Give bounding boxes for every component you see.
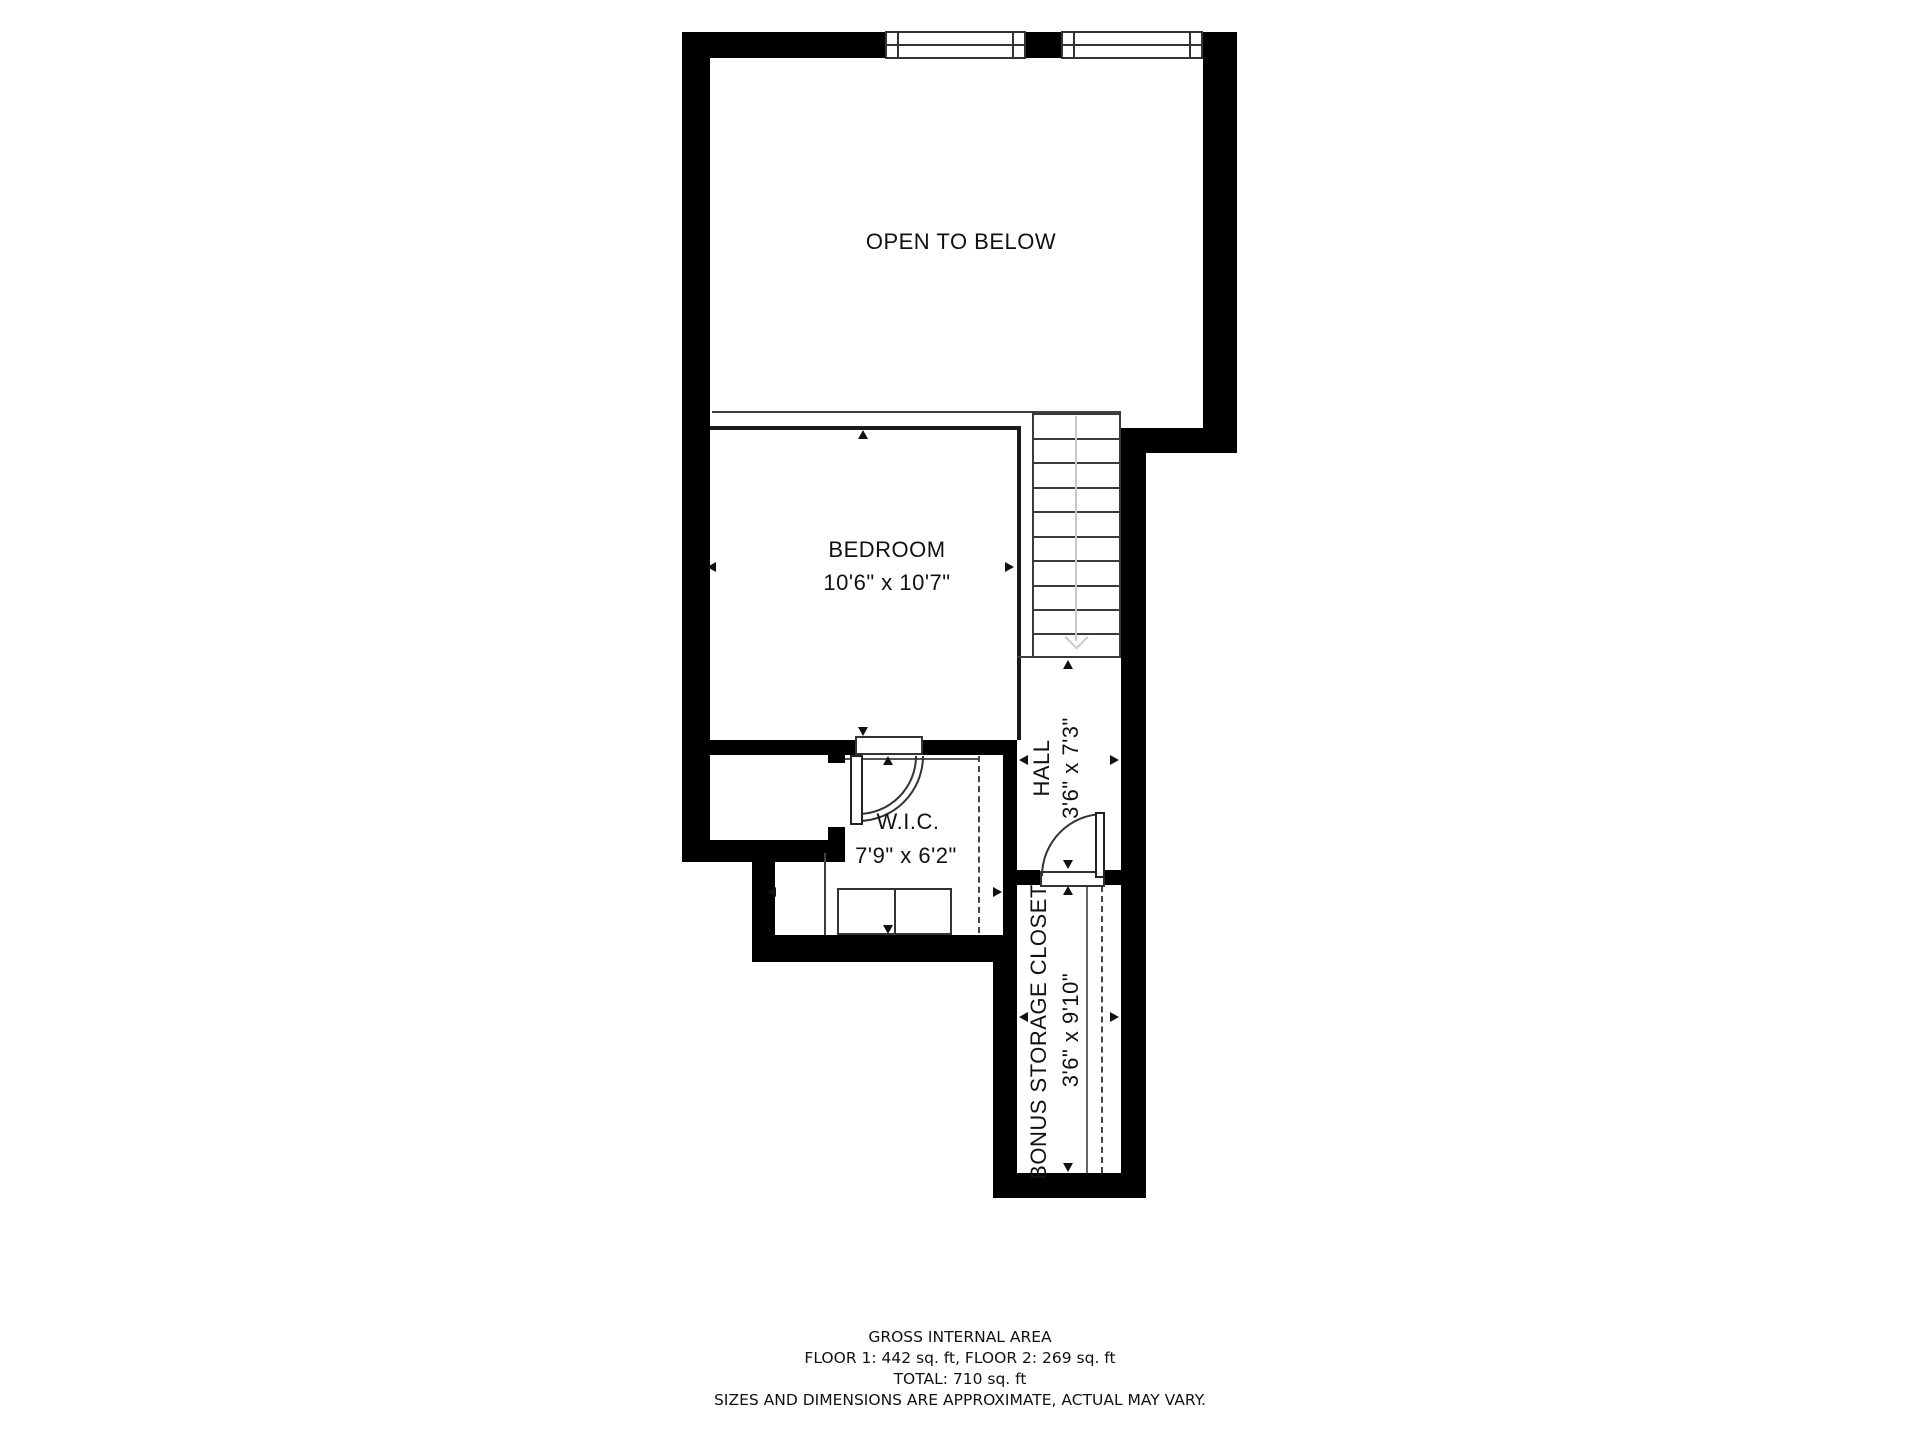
closet-rod-dashed-line (978, 756, 980, 933)
room-label-storage: BONUS STORAGE CLOSET (1026, 884, 1052, 1180)
wall (993, 1173, 1146, 1198)
window-pane-line (1063, 44, 1201, 46)
dimension-arrow-icon (1019, 755, 1028, 765)
storage-rod-dashed-line (1101, 886, 1103, 1173)
storage-shelf-line (1086, 886, 1088, 1173)
wall (1017, 870, 1040, 885)
stairs-direction-line (1075, 416, 1077, 641)
dimension-arrow-icon (767, 887, 776, 897)
window-jamb (1189, 33, 1191, 57)
footer: GROSS INTERNAL AREA FLOOR 1: 442 sq. ft,… (0, 1327, 1920, 1411)
window (885, 31, 1026, 59)
window-pane-line (887, 44, 1024, 46)
window-jamb (897, 33, 899, 57)
closet-organizer-divider (894, 890, 896, 933)
dimension-arrow-icon (993, 887, 1002, 897)
wall (682, 32, 885, 58)
room-dims-wic: 7'9" x 6'2" (855, 843, 957, 869)
room-label-open-to-below: OPEN TO BELOW (866, 229, 1056, 255)
room-label-bedroom: BEDROOM (828, 537, 945, 563)
wall (1026, 32, 1061, 58)
dimension-arrow-icon (707, 562, 716, 572)
room-dims-bedroom: 10'6" x 10'7" (823, 570, 950, 596)
dimension-arrow-icon (1063, 860, 1073, 869)
footer-gross-area: GROSS INTERNAL AREA (0, 1327, 1920, 1348)
window-jamb (1073, 33, 1075, 57)
wall (828, 755, 845, 763)
door-leaf (1095, 812, 1105, 878)
wall (682, 32, 710, 853)
dimension-arrow-icon (883, 756, 893, 765)
dimension-arrow-icon (883, 925, 893, 934)
wall (993, 935, 1017, 1198)
room-label-hall: HALL (1029, 739, 1055, 796)
floorplan: OPEN TO BELOW BEDROOM 10'6" x 10'7" W.I.… (0, 0, 1920, 1440)
footer-floor-areas: FLOOR 1: 442 sq. ft, FLOOR 2: 269 sq. ft (0, 1348, 1920, 1369)
dimension-arrow-icon (1110, 1012, 1119, 1022)
room-dims-hall: 3'6" x 7'3" (1058, 717, 1084, 819)
wall (1121, 428, 1146, 1198)
dimension-arrow-icon (1063, 660, 1073, 669)
wic-partition-line (824, 853, 826, 935)
dimension-arrow-icon (1063, 886, 1073, 895)
room-dims-storage: 3'6" x 9'10" (1058, 973, 1084, 1087)
dimension-arrow-icon (858, 727, 868, 736)
wall (1105, 870, 1121, 885)
window-jamb (1012, 33, 1014, 57)
door-opening (855, 736, 923, 755)
closet-organizer (837, 888, 952, 935)
wall (1003, 740, 1017, 962)
dimension-arrow-icon (1110, 755, 1119, 765)
window (1061, 31, 1203, 59)
bedroom-right-wall (1017, 426, 1021, 740)
dimension-arrow-icon (1063, 1163, 1073, 1172)
wall (752, 935, 1017, 962)
door-leaf (850, 755, 863, 825)
room-label-wic: W.I.C. (877, 809, 940, 835)
footer-disclaimer: SIZES AND DIMENSIONS ARE APPROXIMATE, AC… (0, 1390, 1920, 1411)
dimension-arrow-icon (1005, 562, 1014, 572)
dimension-arrow-icon (858, 430, 868, 439)
wall (1203, 32, 1237, 453)
wall (710, 740, 855, 755)
footer-total-area: TOTAL: 710 sq. ft (0, 1369, 1920, 1390)
